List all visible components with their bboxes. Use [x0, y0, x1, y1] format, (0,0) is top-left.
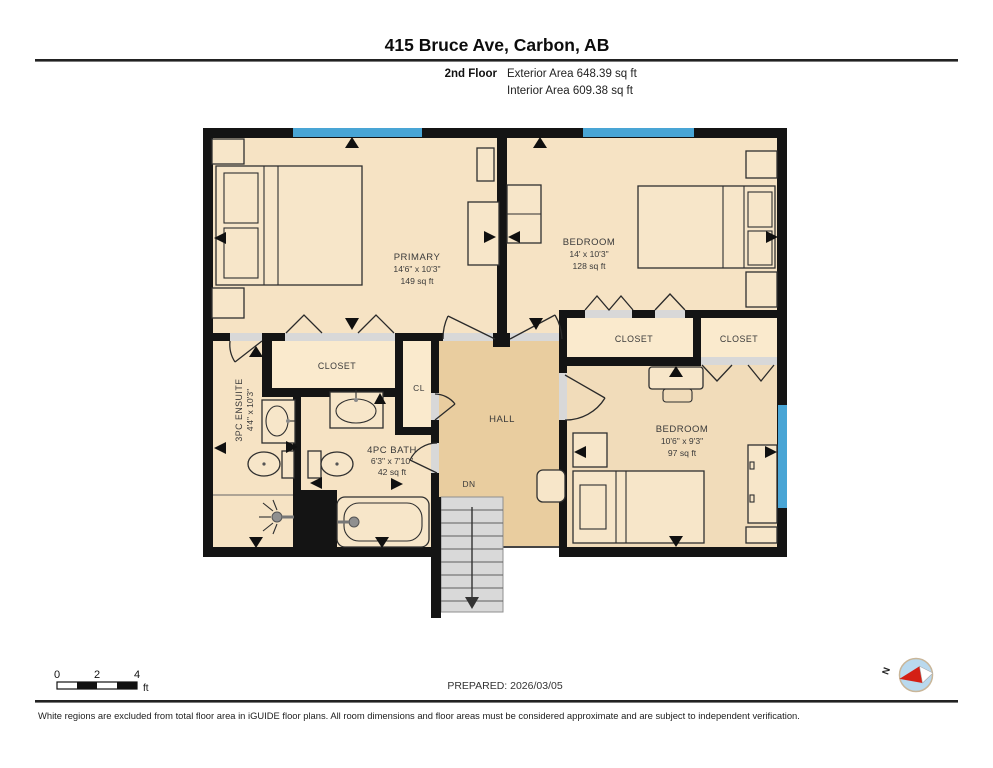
scale-bar-seg — [117, 682, 137, 689]
ensuite-toilet-tank — [282, 451, 294, 478]
furniture-hall — [537, 470, 565, 502]
window-bedroom2 — [583, 128, 694, 137]
page-title: 415 Bruce Ave, Carbon, AB — [385, 35, 610, 55]
label-hall: HALL — [489, 414, 515, 425]
label-primary-name: PRIMARY — [394, 252, 441, 263]
floorplan: PRIMARY 14'6" x 10'3" 149 sq ft BEDROOM … — [203, 128, 787, 618]
bed-bedroom3 — [573, 471, 704, 543]
scale-unit: ft — [143, 683, 149, 694]
header-divider — [35, 59, 958, 62]
compass: N — [880, 659, 934, 692]
label-bath-area: 42 sq ft — [378, 467, 407, 477]
label-primary-dims: 14'6" x 10'3" — [393, 264, 440, 274]
header: 415 Bruce Ave, Carbon, AB 2nd Floor Exte… — [35, 35, 958, 97]
label-bath-name: 4PC BATH — [367, 445, 417, 456]
dresser — [468, 202, 499, 265]
label-bedroom3-dims: 10'6" x 9'3" — [661, 436, 703, 446]
interior-area-label: Interior Area 609.38 sq ft — [507, 85, 634, 97]
shower-head-icon — [272, 512, 282, 522]
label-closet-right: CLOSET — [720, 334, 758, 344]
hall-cabinet — [537, 470, 565, 502]
nightstand — [212, 288, 244, 318]
scale-tick-2: 2 — [94, 669, 100, 681]
label-cl: CL — [413, 383, 425, 393]
scale-bar-seg — [77, 682, 97, 689]
label-primary-area: 149 sq ft — [401, 276, 435, 286]
label-bedroom2-name: BEDROOM — [563, 237, 616, 248]
bathtub-drain — [349, 517, 359, 527]
label-bedroom3-name: BEDROOM — [656, 424, 709, 435]
scale-tick-4: 4 — [134, 669, 140, 681]
scale-tick-0: 0 — [54, 669, 60, 681]
label-closet-left: CLOSET — [615, 334, 653, 344]
floor-label: 2nd Floor — [445, 68, 498, 80]
disclaimer-text: White regions are excluded from total fl… — [38, 710, 800, 721]
floorplan-page: 415 Bruce Ave, Carbon, AB 2nd Floor Exte… — [0, 0, 993, 768]
window-bedroom3 — [778, 405, 787, 508]
nightstand — [212, 139, 244, 164]
exterior-area-label: Exterior Area 648.39 sq ft — [507, 68, 638, 80]
bath-faucet-dot — [354, 398, 358, 402]
label-bedroom2-dims: 14' x 10'3" — [569, 249, 608, 259]
bath-toilet-tank — [308, 451, 321, 478]
dresser — [748, 445, 777, 523]
label-dn: DN — [462, 479, 475, 489]
window-primary — [293, 128, 422, 137]
label-ensuite-dims: 4'4" x 10'3" — [245, 389, 255, 431]
compass-north-label: N — [880, 666, 893, 676]
shelf — [477, 148, 494, 181]
label-bedroom3-area: 97 sq ft — [668, 448, 697, 458]
label-closet-primary: CLOSET — [318, 361, 356, 371]
bench — [746, 527, 777, 543]
bed-primary — [216, 166, 362, 285]
scale-bar: 0 2 4 ft — [54, 669, 149, 694]
footer: 0 2 4 ft PREPARED: 2026/03/05 N White re… — [35, 659, 958, 722]
prepared-date: PREPARED: 2026/03/05 — [447, 680, 563, 692]
label-bedroom2-area: 128 sq ft — [573, 261, 607, 271]
floorplan-canvas: 415 Bruce Ave, Carbon, AB 2nd Floor Exte… — [0, 0, 993, 768]
footer-divider — [35, 700, 958, 703]
label-bath-dims: 6'3" x 7'10" — [371, 456, 413, 466]
label-ensuite-name: 3PC ENSUITE — [234, 378, 244, 441]
nightstand — [746, 151, 777, 178]
stairs — [441, 497, 503, 612]
nightstand — [746, 272, 777, 307]
